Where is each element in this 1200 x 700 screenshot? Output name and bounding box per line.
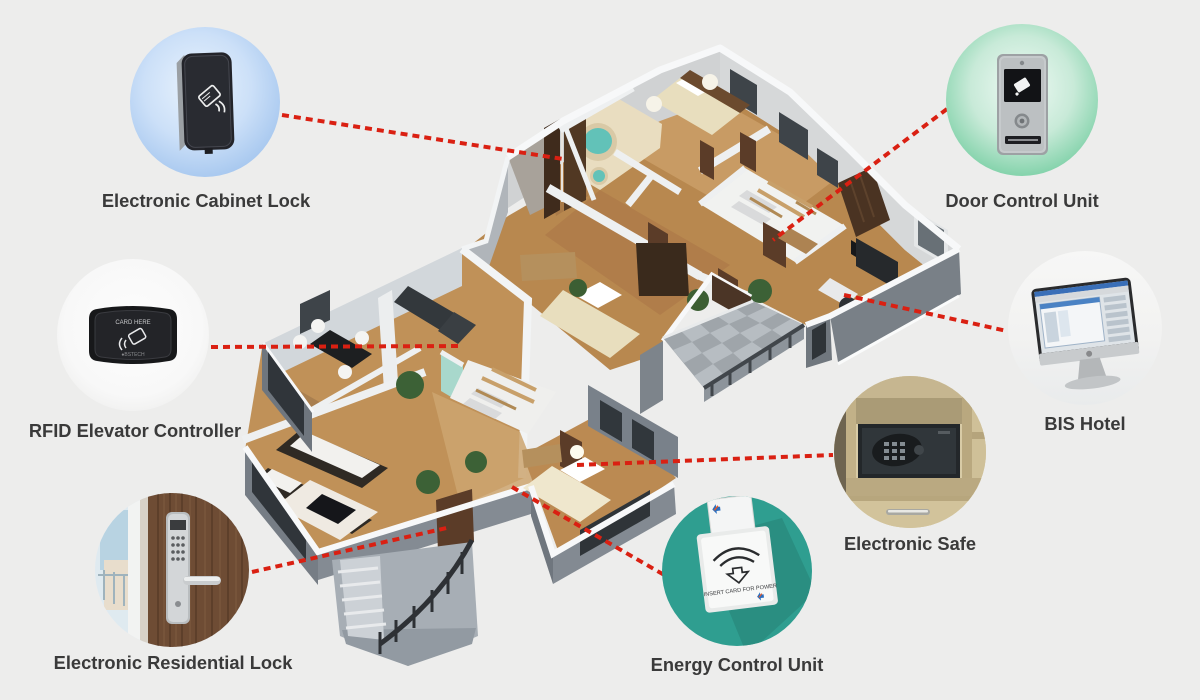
- svg-text:CARD HERE: CARD HERE: [115, 320, 150, 326]
- svg-text:●BSTECH: ●BSTECH: [121, 352, 145, 358]
